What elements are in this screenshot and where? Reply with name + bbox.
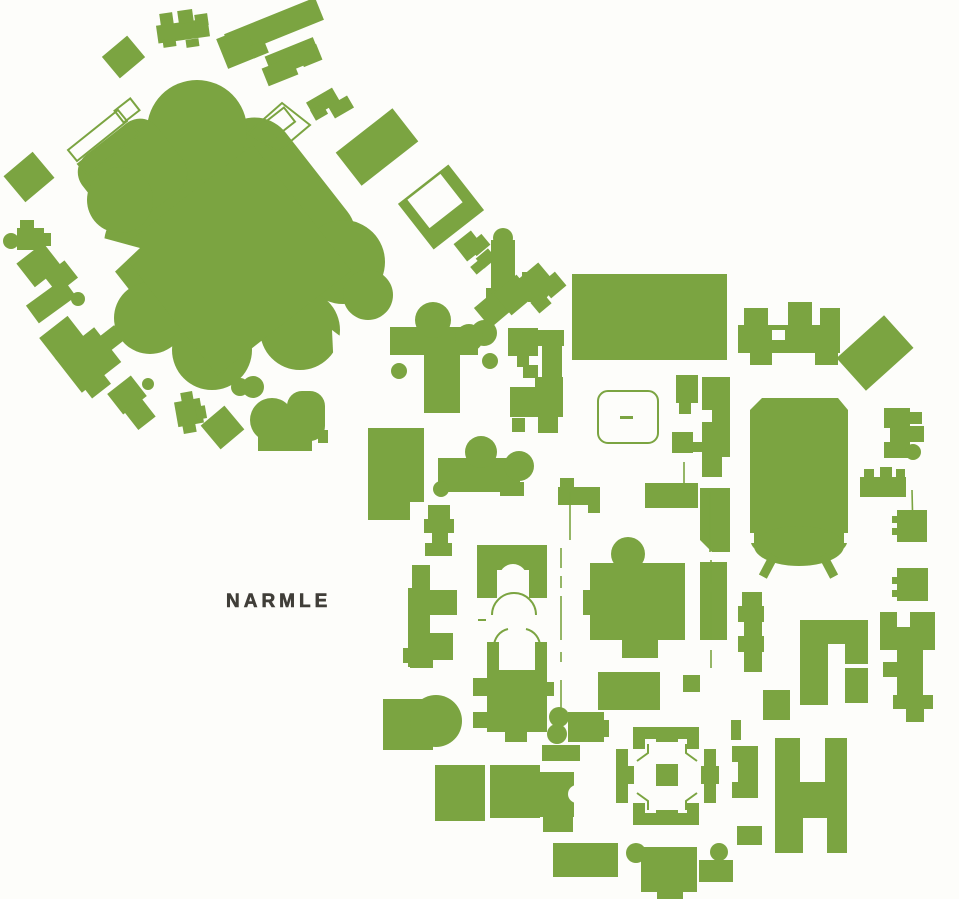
building-footprint — [433, 481, 449, 497]
fortress-gate — [656, 810, 678, 825]
building-footprint — [435, 765, 485, 821]
building-footprint — [738, 636, 764, 652]
church-tower — [487, 642, 499, 674]
castle-hill-blob — [87, 167, 153, 233]
building-footprint — [620, 416, 633, 419]
church-nave — [487, 670, 547, 732]
building-footprint — [4, 152, 55, 202]
building-footprint — [186, 38, 200, 48]
castle-hill-blob — [343, 270, 393, 320]
courtyard-cutout — [410, 502, 424, 520]
building-footprint — [3, 233, 19, 249]
building-footprint — [428, 633, 453, 660]
building-footprint — [700, 488, 730, 552]
building-footprint — [896, 469, 905, 479]
courtyard-cutout — [702, 410, 712, 422]
building-footprint — [465, 436, 497, 468]
building-footprint — [159, 12, 174, 26]
building-footprint — [676, 375, 698, 403]
building-footprint — [750, 352, 772, 365]
building-footprint — [828, 620, 868, 644]
building-footprint — [744, 308, 768, 328]
courtyard-cutout — [844, 533, 848, 543]
building-footprint — [892, 577, 897, 584]
building-footprint — [512, 418, 525, 432]
building-footprint — [473, 678, 487, 696]
building-footprint — [738, 762, 758, 782]
building-footprint — [510, 387, 537, 417]
building-footprint — [763, 690, 790, 720]
building-footprint — [588, 500, 600, 513]
building-footprint — [547, 724, 567, 744]
building-footprint — [699, 860, 733, 882]
church-apse — [477, 545, 497, 598]
building-footprint — [412, 565, 430, 590]
building-footprint — [455, 324, 483, 352]
building-footprint — [890, 426, 924, 442]
building-footprint — [71, 292, 85, 306]
building-footprint — [897, 568, 928, 601]
building-footprint — [505, 732, 527, 742]
building-footprint — [892, 528, 897, 535]
building-footprint — [403, 648, 410, 663]
building-footprint — [425, 543, 452, 556]
building-footprint — [542, 344, 562, 380]
building-footprint — [884, 408, 910, 428]
building-footprint — [731, 720, 741, 740]
building-footprint — [690, 442, 708, 452]
fortress-gate — [616, 766, 634, 784]
building-footprint — [547, 682, 554, 696]
building-footprint — [535, 377, 563, 417]
building-footprint — [523, 365, 538, 378]
building-footprint — [702, 455, 722, 477]
courtyard-cutout — [750, 533, 754, 543]
domed-building — [590, 563, 685, 640]
building-footprint — [880, 467, 892, 477]
courtyard-cutout — [800, 738, 825, 782]
building-footprint — [905, 444, 921, 460]
building-footprint — [336, 108, 419, 185]
building-footprint — [428, 590, 457, 615]
building-footprint — [908, 412, 922, 424]
building-footprint — [583, 590, 591, 615]
map-root: NARMLE — [0, 0, 959, 899]
building-footprint — [102, 36, 145, 79]
building-footprint — [473, 712, 487, 728]
building-footprint — [560, 478, 574, 488]
fortress-wall — [687, 739, 699, 749]
building-footprint — [504, 451, 534, 481]
building-footprint — [568, 712, 604, 742]
building-footprint — [710, 843, 728, 861]
building-footprint — [744, 622, 762, 636]
building-footprint — [424, 355, 460, 413]
building-footprint — [598, 672, 660, 710]
building-footprint — [490, 765, 540, 818]
map-label: NARMLE — [226, 591, 331, 613]
market-hall — [572, 274, 727, 360]
building-footprint — [478, 619, 486, 621]
courtyard-cutout — [897, 612, 910, 627]
building-footprint — [428, 505, 450, 521]
church-tower — [535, 642, 547, 674]
fortress-wall — [633, 803, 645, 813]
building-footprint — [641, 847, 697, 892]
building-footprint — [815, 352, 838, 365]
building-footprint — [820, 315, 840, 333]
building-footprint — [201, 406, 245, 450]
building-footprint — [732, 746, 758, 762]
building-footprint — [672, 432, 693, 453]
building-footprint — [538, 417, 558, 433]
building-footprint — [897, 510, 927, 542]
building-footprint — [391, 363, 407, 379]
fortress-keep — [656, 764, 678, 786]
building-footprint — [738, 606, 764, 622]
building-footprint — [657, 890, 683, 899]
building-footprint — [180, 391, 194, 403]
building-footprint — [543, 817, 573, 832]
building-footprint — [194, 13, 209, 27]
fortress-gate — [701, 766, 719, 784]
building-footprint — [744, 652, 762, 672]
building-footprint — [432, 531, 448, 544]
building-footprint — [700, 562, 727, 640]
building-footprint — [800, 620, 828, 705]
building-footprint — [622, 640, 658, 658]
castle-notch — [332, 330, 356, 372]
building-footprint — [645, 483, 698, 508]
building-footprint — [424, 519, 454, 533]
building-footprint — [549, 707, 569, 727]
building-footprint — [553, 843, 618, 877]
building-footprint — [788, 302, 812, 328]
building-footprint — [742, 592, 762, 606]
courtyard-cutout — [772, 330, 785, 340]
courtyard-cutout — [568, 785, 586, 803]
fortress-gate — [656, 727, 678, 742]
building-footprint — [737, 826, 762, 845]
building-footprint — [864, 469, 874, 479]
fortress-wall — [633, 739, 645, 749]
building-footprint — [897, 650, 923, 696]
building-footprint — [408, 588, 430, 667]
building-footprint — [418, 702, 444, 718]
courtyard-cutout — [803, 818, 827, 853]
building-footprint — [892, 590, 897, 597]
building-footprint — [542, 745, 580, 761]
building-footprint — [892, 516, 897, 523]
building-footprint — [20, 220, 34, 230]
building-footprint — [318, 430, 328, 443]
building-footprint — [683, 675, 700, 692]
building-footprint — [231, 378, 249, 396]
building-footprint — [906, 708, 924, 722]
building-footprint — [508, 328, 538, 356]
building-footprint — [415, 302, 451, 338]
building-footprint — [845, 644, 868, 664]
building-footprint — [836, 315, 913, 391]
building-footprint — [258, 424, 312, 451]
building-footprint — [845, 668, 868, 703]
building-footprint — [860, 477, 906, 497]
building-footprint — [679, 403, 691, 414]
building-footprint — [500, 482, 524, 496]
fortress-wall — [687, 803, 699, 813]
building-footprint — [893, 695, 933, 709]
building-footprint — [177, 9, 194, 24]
building-footprint — [142, 378, 154, 390]
narmle-map-canvas — [0, 0, 959, 899]
building-footprint — [883, 662, 897, 677]
building-footprint — [410, 660, 433, 668]
building-footprint — [732, 782, 758, 798]
church-apse — [529, 545, 547, 598]
building-footprint — [538, 330, 564, 346]
building-footprint — [482, 353, 498, 369]
